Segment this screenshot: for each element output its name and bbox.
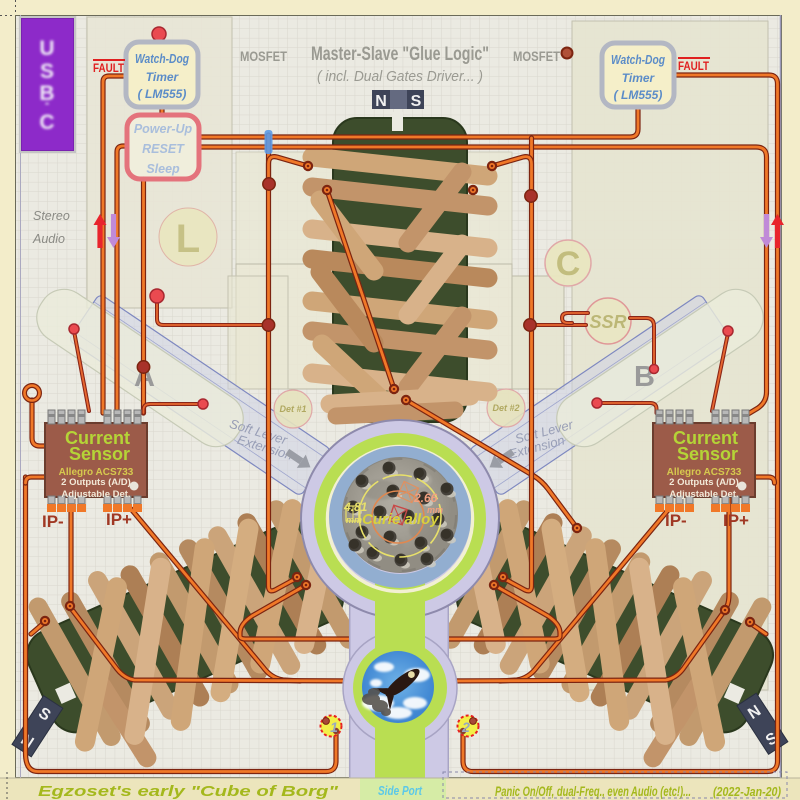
svg-text:Timer: Timer [622, 71, 656, 85]
svg-text:Curie alloy: Curie alloy [362, 511, 439, 528]
svg-text:C: C [39, 111, 54, 134]
svg-text:Master-Slave "Glue Logic": Master-Slave "Glue Logic" [311, 44, 489, 65]
svg-text:U: U [39, 37, 54, 60]
svg-text:Stereo: Stereo [33, 209, 70, 223]
svg-text:Side Port: Side Port [378, 783, 423, 798]
svg-text:1: 1 [330, 719, 338, 735]
svg-text:RESET: RESET [142, 142, 185, 156]
svg-text:Watch-Dog: Watch-Dog [611, 53, 665, 67]
svg-text:( LM555): ( LM555) [614, 88, 663, 102]
svg-text:FAULT: FAULT [678, 61, 709, 73]
svg-text:Sensor: Sensor [677, 444, 738, 464]
svg-text:Adjustable Det.: Adjustable Det. [61, 489, 130, 500]
svg-text:( incl. Dual Gates Driver... ): ( incl. Dual Gates Driver... ) [317, 69, 483, 85]
svg-text:S: S [40, 60, 54, 83]
svg-text:2 Outputs (A/D): 2 Outputs (A/D) [669, 477, 739, 488]
svg-text:Sensor: Sensor [69, 444, 130, 464]
svg-text:Sleep: Sleep [146, 162, 180, 176]
svg-text:mm: mm [346, 515, 362, 525]
svg-text:IP-: IP- [665, 511, 687, 530]
svg-text:FAULT: FAULT [93, 63, 124, 75]
svg-text:( LM555): ( LM555) [138, 87, 187, 101]
svg-text:Det #1: Det #1 [279, 404, 306, 414]
svg-text:SSR: SSR [589, 312, 626, 332]
svg-text:2 Outputs (A/D): 2 Outputs (A/D) [61, 477, 131, 488]
svg-text:N: N [375, 93, 387, 110]
svg-text:Watch-Dog: Watch-Dog [135, 52, 189, 66]
svg-text:IP-: IP- [42, 512, 64, 531]
svg-text:MOSFET: MOSFET [513, 49, 561, 64]
svg-text:MOSFET: MOSFET [240, 49, 288, 64]
svg-text:Det #2: Det #2 [492, 403, 519, 413]
svg-text:C: C [556, 245, 581, 283]
svg-text:Egzoset's early "Cube of Borg": Egzoset's early "Cube of Borg" [38, 783, 339, 800]
svg-text:-: - [45, 95, 49, 110]
svg-text:Timer: Timer [146, 70, 180, 84]
svg-text:Adjustable Det.: Adjustable Det. [669, 489, 738, 500]
svg-text:IP+: IP+ [723, 511, 749, 530]
svg-text:2: 2 [461, 719, 470, 735]
svg-text:Panic On/Off, dual-Freq., even: Panic On/Off, dual-Freq., even Audio (et… [495, 783, 691, 799]
svg-text:Power-Up: Power-Up [134, 122, 193, 136]
svg-text:IP+: IP+ [106, 510, 132, 529]
svg-text:S: S [411, 93, 422, 110]
svg-text:2.66: 2.66 [413, 491, 438, 505]
svg-text:(2022-Jan-20): (2022-Jan-20) [713, 784, 781, 799]
svg-text:Audio: Audio [32, 232, 65, 246]
svg-text:L: L [176, 217, 200, 261]
